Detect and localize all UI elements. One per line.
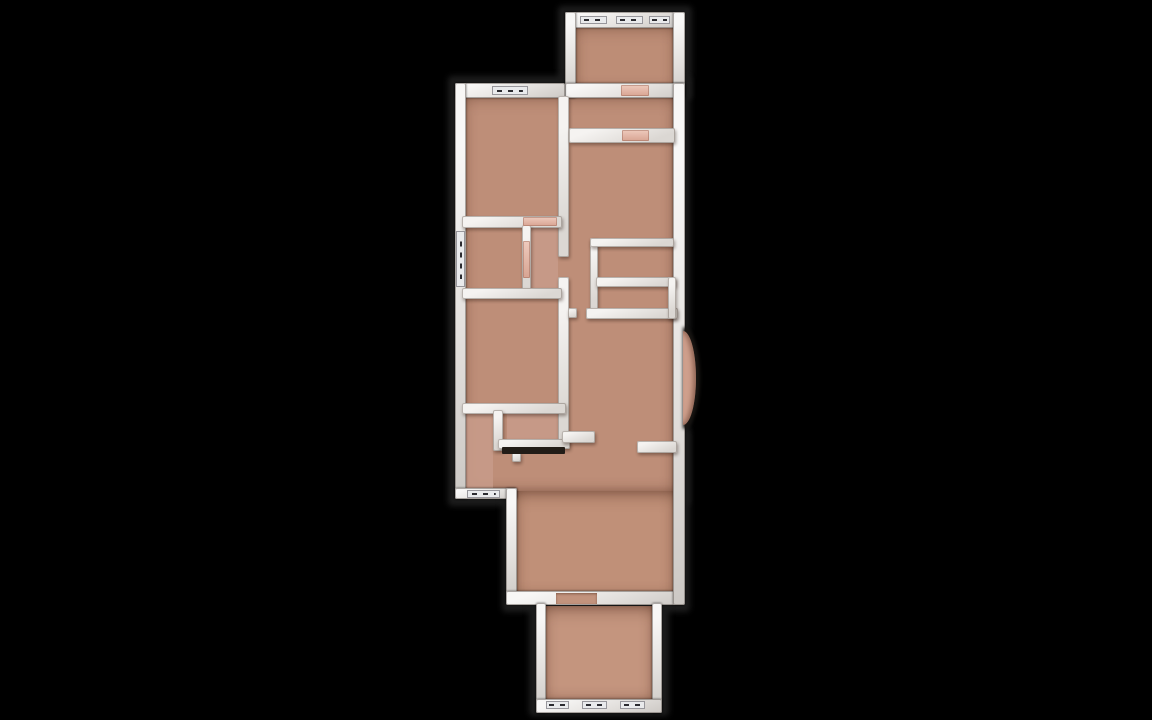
window-top-room-3 <box>649 16 670 24</box>
inner-wall-spine-lower <box>558 277 569 445</box>
window-bottom-room-3 <box>620 701 645 709</box>
inner-wall-closet-mid <box>596 277 676 287</box>
inner-wall-closet-top <box>590 238 674 247</box>
door-hall-top <box>622 130 649 141</box>
outer-wall-bottom-room-left <box>536 603 546 713</box>
outer-wall-bottom-room-right <box>652 603 662 713</box>
inner-wall-closet-right <box>668 277 676 319</box>
floor-tint-vestibule <box>531 226 558 288</box>
inner-wall-closet-bottom <box>586 308 678 319</box>
window-top-room-1 <box>580 16 607 24</box>
inner-wall-hall-right <box>637 441 677 453</box>
opening-bottom-room <box>556 593 597 604</box>
window-bottom-room-2 <box>582 701 607 709</box>
door-top-room <box>621 85 649 96</box>
inner-wall-vestibule-bottom <box>462 288 562 299</box>
floor-bottom-room <box>544 606 654 700</box>
window-top-room-2 <box>616 16 643 24</box>
door-vestibule <box>523 241 530 278</box>
door-bedroom-leaf <box>523 217 557 226</box>
inner-wall-corner-piece <box>562 431 595 443</box>
window-bath-bottom <box>467 490 500 498</box>
inner-wall-midroom-bottom <box>462 403 566 414</box>
floor-tint-closet <box>507 413 560 440</box>
window-left-wall <box>456 231 465 287</box>
window-bottom-room-1 <box>546 701 569 709</box>
window-bedroom-top <box>492 86 528 95</box>
floor-tint-bath-strip <box>465 413 493 489</box>
inner-wall-spine-upper <box>558 96 569 257</box>
counter-dark-strip <box>502 447 565 454</box>
inner-wall-spine-nub <box>568 308 577 318</box>
floor-plan <box>0 0 1152 720</box>
floor-main-lower-hall <box>515 491 675 595</box>
floor-top-room <box>574 24 676 90</box>
outer-wall-step-vertical <box>506 488 517 603</box>
